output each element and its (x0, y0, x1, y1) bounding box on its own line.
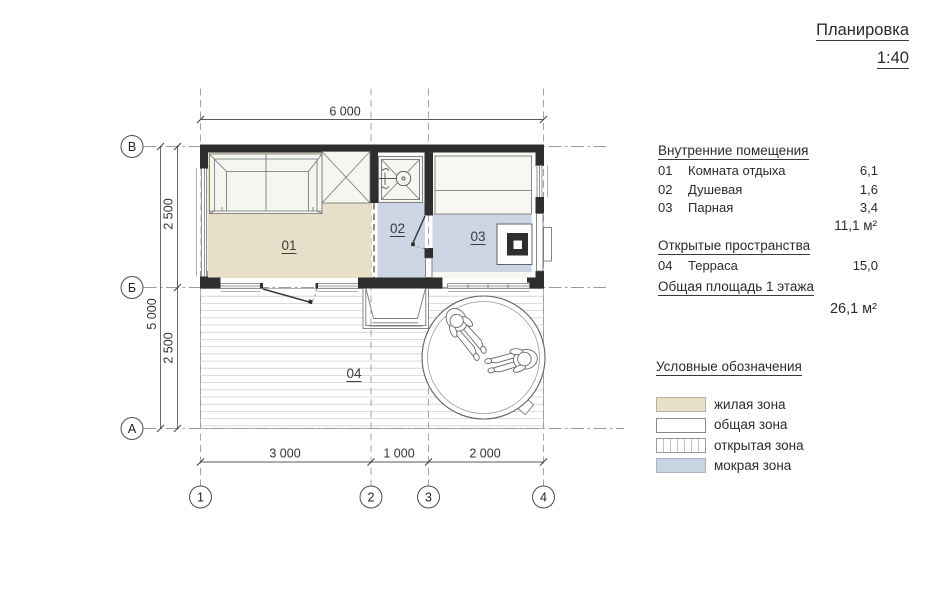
svg-text:01: 01 (281, 238, 296, 253)
svg-text:2: 2 (368, 491, 375, 505)
svg-text:1 000: 1 000 (383, 447, 414, 461)
svg-text:2 500: 2 500 (162, 332, 176, 363)
svg-text:6 000: 6 000 (329, 105, 360, 119)
svg-text:1: 1 (197, 491, 204, 505)
svg-text:3 000: 3 000 (269, 447, 300, 461)
svg-text:04: 04 (346, 366, 362, 381)
svg-text:03: 03 (470, 229, 485, 244)
svg-text:02: 02 (390, 221, 405, 236)
svg-text:В: В (128, 140, 136, 154)
svg-text:Б: Б (128, 281, 136, 295)
svg-text:3: 3 (425, 491, 432, 505)
svg-text:2 500: 2 500 (162, 198, 176, 229)
svg-text:А: А (128, 422, 137, 436)
svg-text:2 000: 2 000 (469, 447, 500, 461)
svg-text:4: 4 (540, 491, 547, 505)
svg-text:5 000: 5 000 (145, 298, 159, 329)
